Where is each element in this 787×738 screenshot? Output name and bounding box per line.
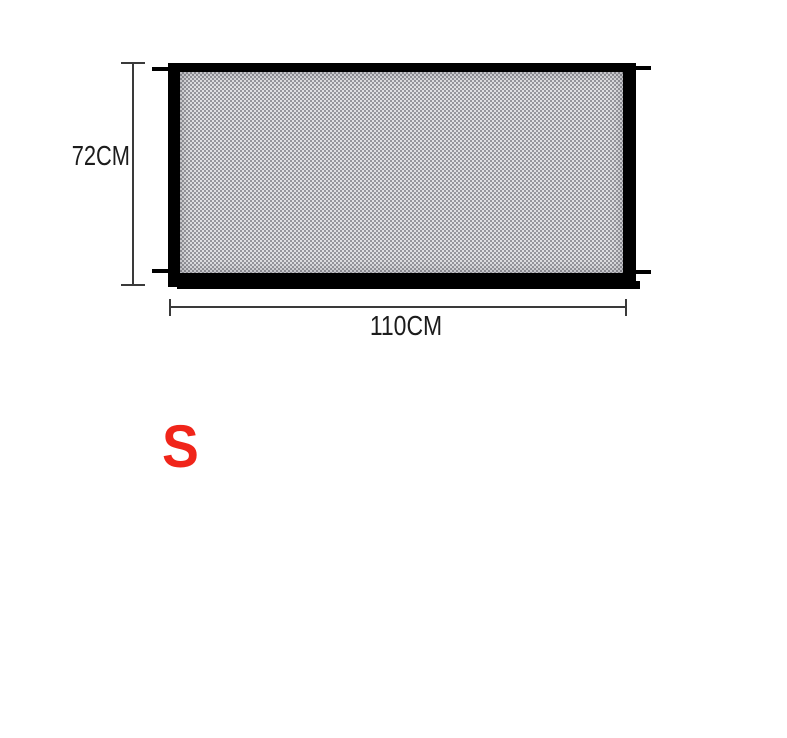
- size-badge: S: [162, 417, 199, 477]
- gate-hook-top-left: [152, 67, 168, 71]
- height-dimension-cap-bottom: [121, 284, 145, 286]
- mesh-gate-graphic: [168, 63, 636, 287]
- height-dimension-cap-top: [121, 62, 145, 64]
- gate-hook-bottom-left: [152, 269, 168, 273]
- gate-hook-top-right: [635, 66, 651, 70]
- gate-mesh-panel: [180, 72, 623, 273]
- width-dimension-tick-right: [625, 299, 627, 316]
- width-dimension-tick-left: [169, 299, 171, 316]
- width-label: 110CM: [349, 312, 464, 340]
- gate-hook-bottom-right: [635, 270, 651, 274]
- product-dimension-diagram: 72CM 110CM S: [0, 0, 787, 738]
- gate-bottom-bar: [177, 281, 640, 289]
- height-dimension-line: [132, 62, 134, 286]
- width-dimension-line: [169, 306, 627, 308]
- height-label: 72CM: [57, 142, 130, 170]
